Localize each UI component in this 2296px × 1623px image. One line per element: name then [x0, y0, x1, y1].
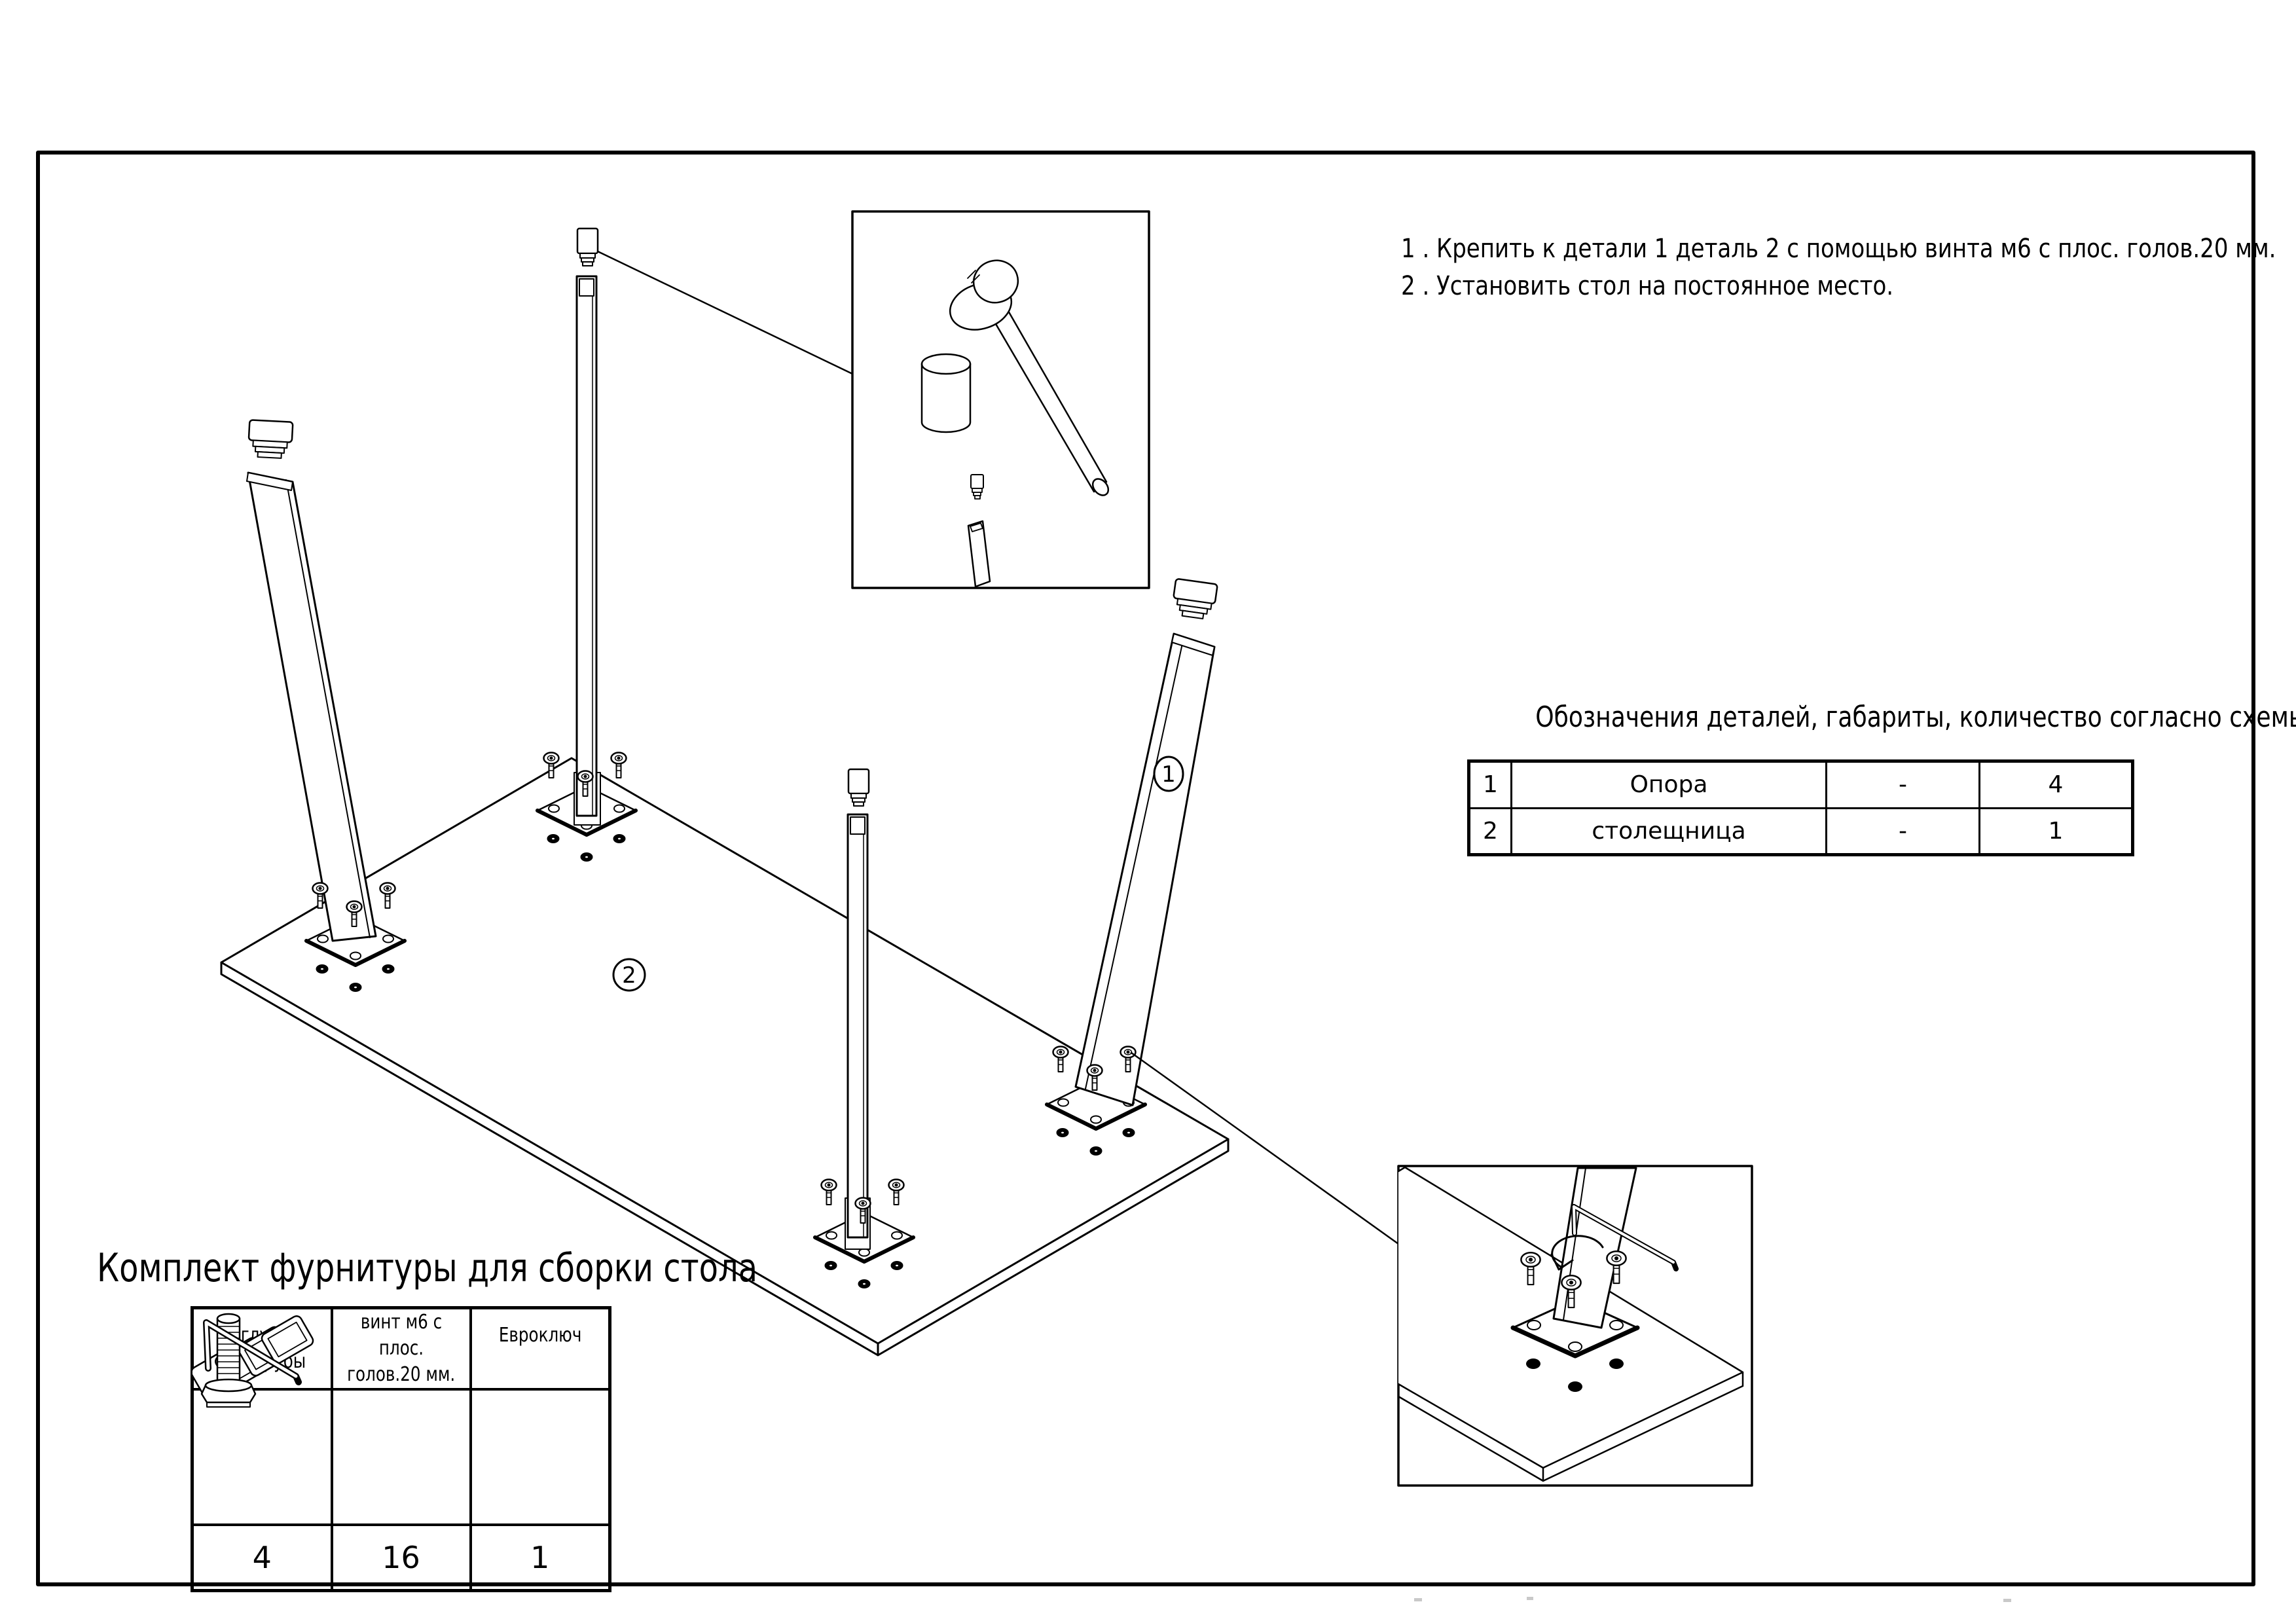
instruction-step-1: 1 . Крепить к детали 1 деталь 2 с помощь… [1401, 230, 2276, 268]
leg-bottom [845, 814, 870, 1249]
part-1-size: - [1827, 761, 1980, 809]
plate-hole [350, 953, 361, 960]
balloon-part-2: 2 [613, 959, 645, 991]
plate-hole [549, 805, 559, 812]
balloon-part-1: 1 [1154, 757, 1183, 791]
leg-left [247, 473, 376, 941]
hardware-table: Заглушка для трубы винт м6 с плос. голов… [191, 1306, 611, 1592]
hardware-hexkey-qty: 1 [471, 1525, 610, 1591]
plate-hole [892, 1232, 902, 1239]
balloon-part-1-label: 1 [1161, 761, 1176, 788]
hardware-col-hexkey-label: Евроключ [471, 1308, 610, 1390]
part-2-size: - [1827, 808, 1980, 855]
leg-right [1076, 634, 1214, 1105]
drawing-sheet: 1 2 [0, 0, 2296, 1623]
part-2-qty: 1 [1980, 808, 2133, 855]
hardware-screw-qty: 16 [332, 1525, 471, 1591]
parts-table-row-2: 2 столещница - 1 [1469, 808, 2133, 855]
plate-hole [383, 936, 393, 943]
hardware-col-screw-label: винт м6 с плос. голов.20 мм. [332, 1308, 471, 1390]
instructions: 1 . Крепить к детали 1 деталь 2 с помощь… [1401, 230, 2296, 305]
plate-hole [614, 805, 625, 812]
parts-table-title: Обозначения деталей, габариты, количеств… [1440, 701, 2223, 734]
part-1-num: 1 [1469, 761, 1512, 809]
plate-hole [1058, 1099, 1068, 1106]
instruction-step-2: 2 . Установить стол на постоянное место. [1401, 268, 1893, 305]
hardware-table-quantities: 4 16 1 [192, 1525, 610, 1591]
plate-hole [1091, 1116, 1101, 1123]
balloon-part-2-label: 2 [622, 962, 636, 989]
tube-cap-bottom [848, 769, 869, 806]
tube-cap-left [248, 420, 293, 458]
plate-hole [318, 936, 328, 943]
detail-box-cap-install [852, 211, 1149, 588]
hardware-table-title: Комплект фурнитуры для сборки стола [97, 1245, 922, 1291]
part-1-name: Опора [1512, 761, 1827, 809]
part-2-name: столещница [1512, 808, 1827, 855]
detail-box-leg-fastening [1398, 1166, 1752, 1486]
tube-cap-top [577, 228, 598, 266]
parts-table: 1 Опора - 4 2 столещница - 1 [1467, 759, 2134, 856]
plate-hole [826, 1232, 837, 1239]
part-2-num: 2 [1469, 808, 1512, 855]
parts-table-row-1: 1 Опора - 4 [1469, 761, 2133, 809]
hardware-table-items [192, 1389, 610, 1525]
leg-top [574, 276, 600, 825]
part-1-qty: 4 [1980, 761, 2133, 809]
hardware-caps-qty: 4 [192, 1525, 332, 1591]
footer-artifact [1414, 1597, 2011, 1602]
leader-line-top-detail [598, 251, 852, 374]
hardware-item-screw [332, 1389, 471, 1525]
tube-cap-right [1171, 579, 1218, 620]
hardware-item-hexkey [471, 1389, 610, 1525]
